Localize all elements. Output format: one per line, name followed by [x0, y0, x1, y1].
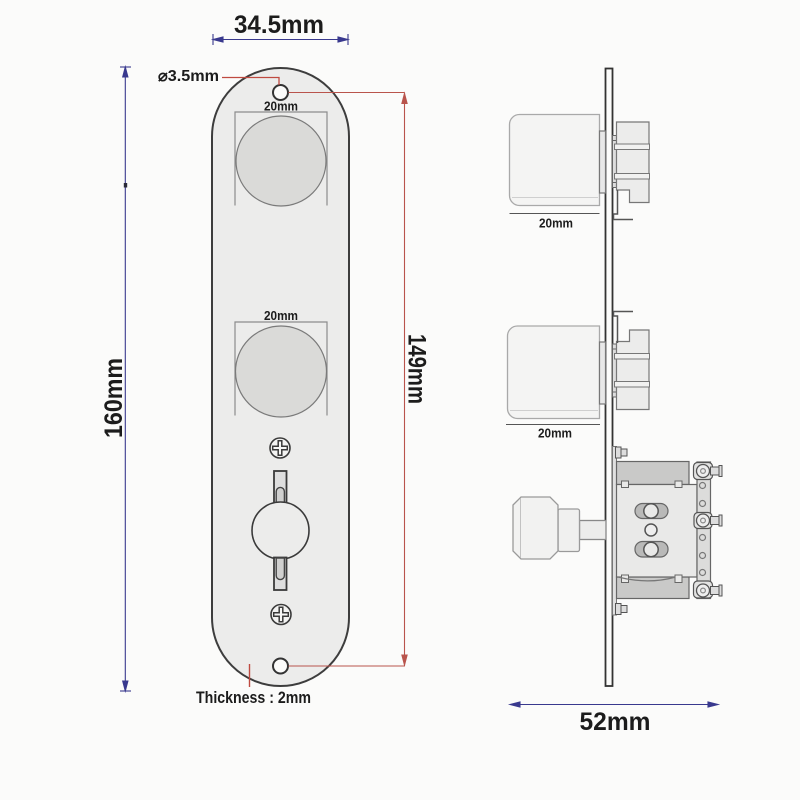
svg-text:34.5mm: 34.5mm — [234, 11, 324, 39]
svg-text:20mm: 20mm — [264, 308, 298, 323]
svg-text:52mm: 52mm — [580, 708, 651, 736]
svg-text:160mm: 160mm — [100, 358, 128, 438]
svg-text:149mm: 149mm — [403, 334, 431, 404]
svg-text:⌀3.5mm: ⌀3.5mm — [158, 68, 219, 85]
svg-text:20mm: 20mm — [264, 99, 298, 114]
svg-text:20mm: 20mm — [539, 216, 573, 231]
svg-text:Thickness : 2mm: Thickness : 2mm — [196, 688, 311, 707]
svg-text:20mm: 20mm — [538, 426, 572, 441]
